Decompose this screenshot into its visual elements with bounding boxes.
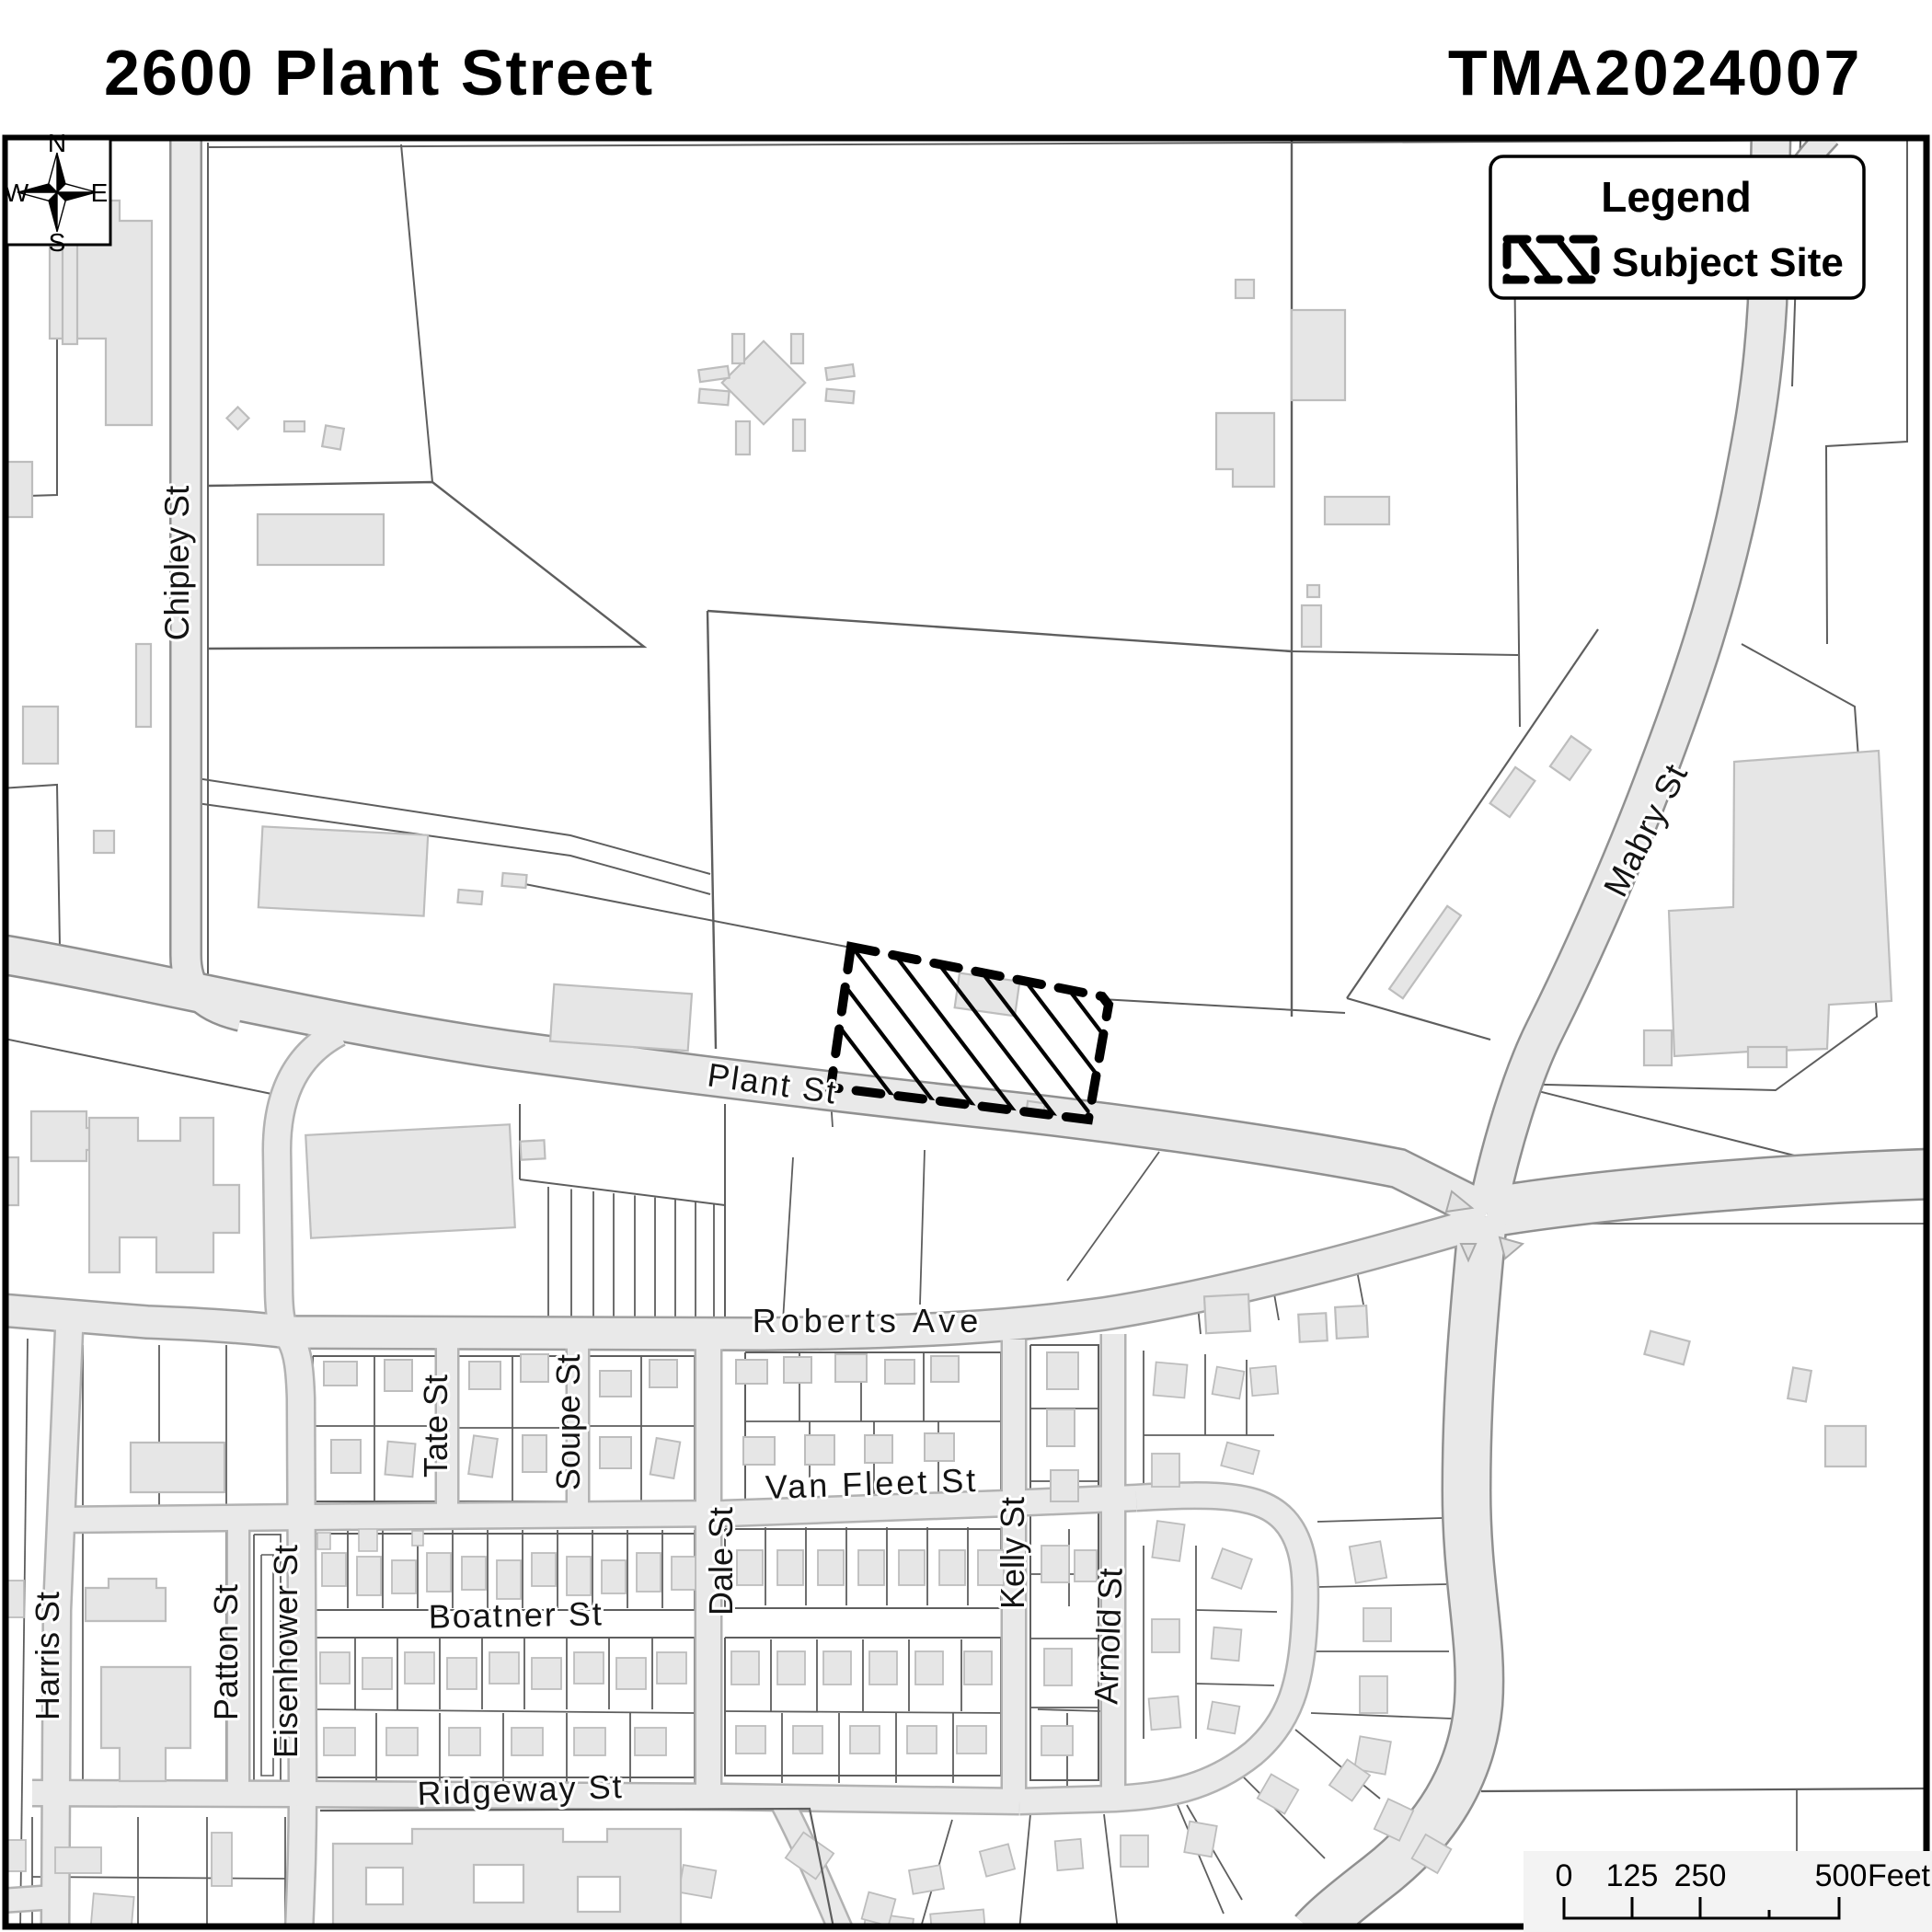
svg-text:Harris St: Harris St [29,1592,66,1720]
svg-text:Feet: Feet [1868,1858,1931,1893]
svg-text:Van Fleet St: Van Fleet St [765,1461,979,1506]
svg-text:E: E [91,178,109,207]
svg-text:S: S [49,228,66,257]
svg-text:Boatner St: Boatner St [428,1594,604,1635]
svg-text:2600 Plant Street: 2600 Plant Street [104,37,654,109]
svg-text:TMA2024007: TMA2024007 [1448,37,1862,109]
svg-text:500: 500 [1815,1858,1868,1893]
svg-text:Dale St: Dale St [702,1507,740,1616]
svg-text:Chipley St: Chipley St [158,485,196,640]
svg-text:Roberts Ave: Roberts Ave [753,1302,983,1340]
svg-text:Soupe St: Soupe St [549,1354,587,1490]
svg-text:Ridgeway St: Ridgeway St [417,1767,624,1812]
svg-text:Tate St: Tate St [417,1374,454,1478]
svg-text:250: 250 [1674,1858,1727,1893]
svg-text:Arnold St: Arnold St [1087,1568,1129,1705]
svg-text:Subject Site: Subject Site [1612,240,1844,285]
svg-text:Legend: Legend [1601,173,1752,221]
svg-text:0: 0 [1556,1858,1573,1893]
svg-text:Kelly St: Kelly St [994,1497,1031,1609]
svg-text:Eisenhower St: Eisenhower St [267,1545,305,1758]
svg-text:N: N [48,129,66,157]
svg-text:Patton St: Patton St [207,1584,245,1720]
svg-text:125: 125 [1606,1858,1659,1893]
svg-text:W: W [5,178,29,207]
